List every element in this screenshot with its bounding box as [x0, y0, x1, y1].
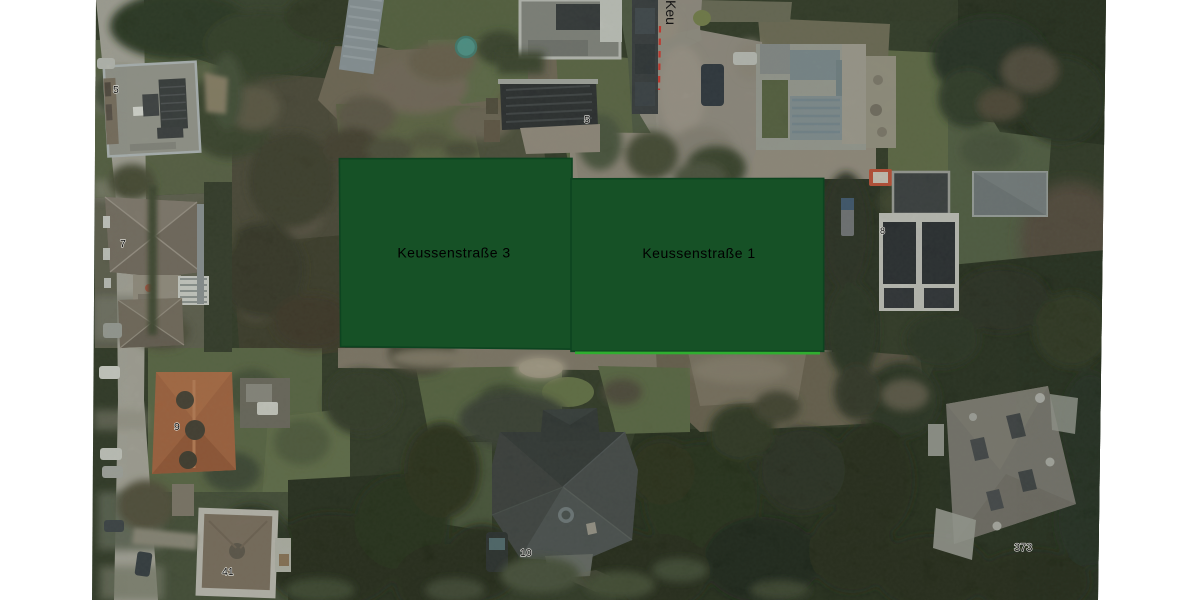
svg-text:5: 5 [584, 114, 590, 126]
svg-text:41: 41 [222, 566, 234, 578]
svg-text:373: 373 [1014, 542, 1032, 554]
svg-text:Keussenstraße 1: Keussenstraße 1 [642, 245, 755, 261]
svg-text:Keussenstraße 3: Keussenstraße 3 [397, 245, 510, 261]
svg-text:7: 7 [120, 238, 126, 250]
svg-text:5: 5 [113, 84, 119, 96]
svg-text:10: 10 [520, 547, 532, 559]
svg-text:Keu: Keu [663, 0, 679, 25]
svg-text:9: 9 [174, 421, 180, 433]
svg-text:8: 8 [880, 226, 885, 236]
